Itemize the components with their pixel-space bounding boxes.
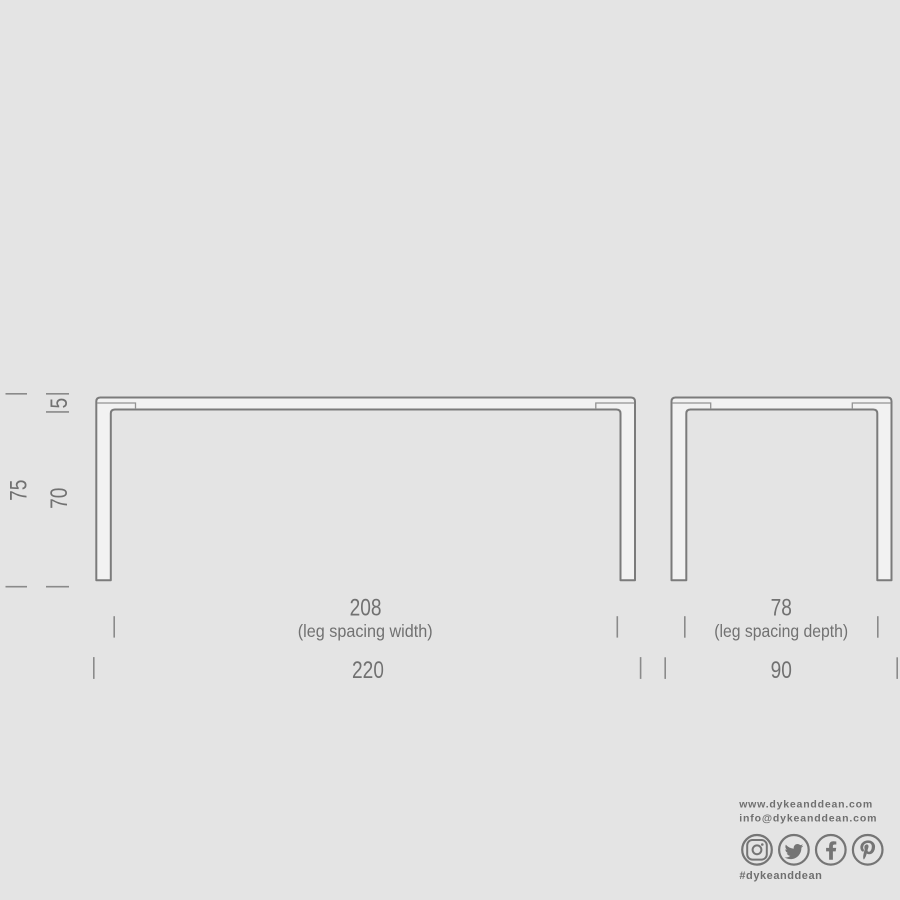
svg-text:5: 5 <box>45 398 73 409</box>
svg-text:(leg spacing width): (leg spacing width) <box>298 621 433 641</box>
svg-text:www.dykeanddean.com: www.dykeanddean.com <box>738 799 873 811</box>
svg-text:info@dykeanddean.com: info@dykeanddean.com <box>739 812 877 824</box>
svg-text:90: 90 <box>771 655 792 683</box>
svg-text:(leg spacing depth): (leg spacing depth) <box>714 621 848 641</box>
svg-text:75: 75 <box>4 480 32 501</box>
svg-text:70: 70 <box>45 488 73 509</box>
svg-text:220: 220 <box>352 655 384 683</box>
svg-text:#dykeanddean: #dykeanddean <box>739 870 822 882</box>
svg-text:208: 208 <box>350 593 382 621</box>
svg-text:78: 78 <box>771 593 792 621</box>
